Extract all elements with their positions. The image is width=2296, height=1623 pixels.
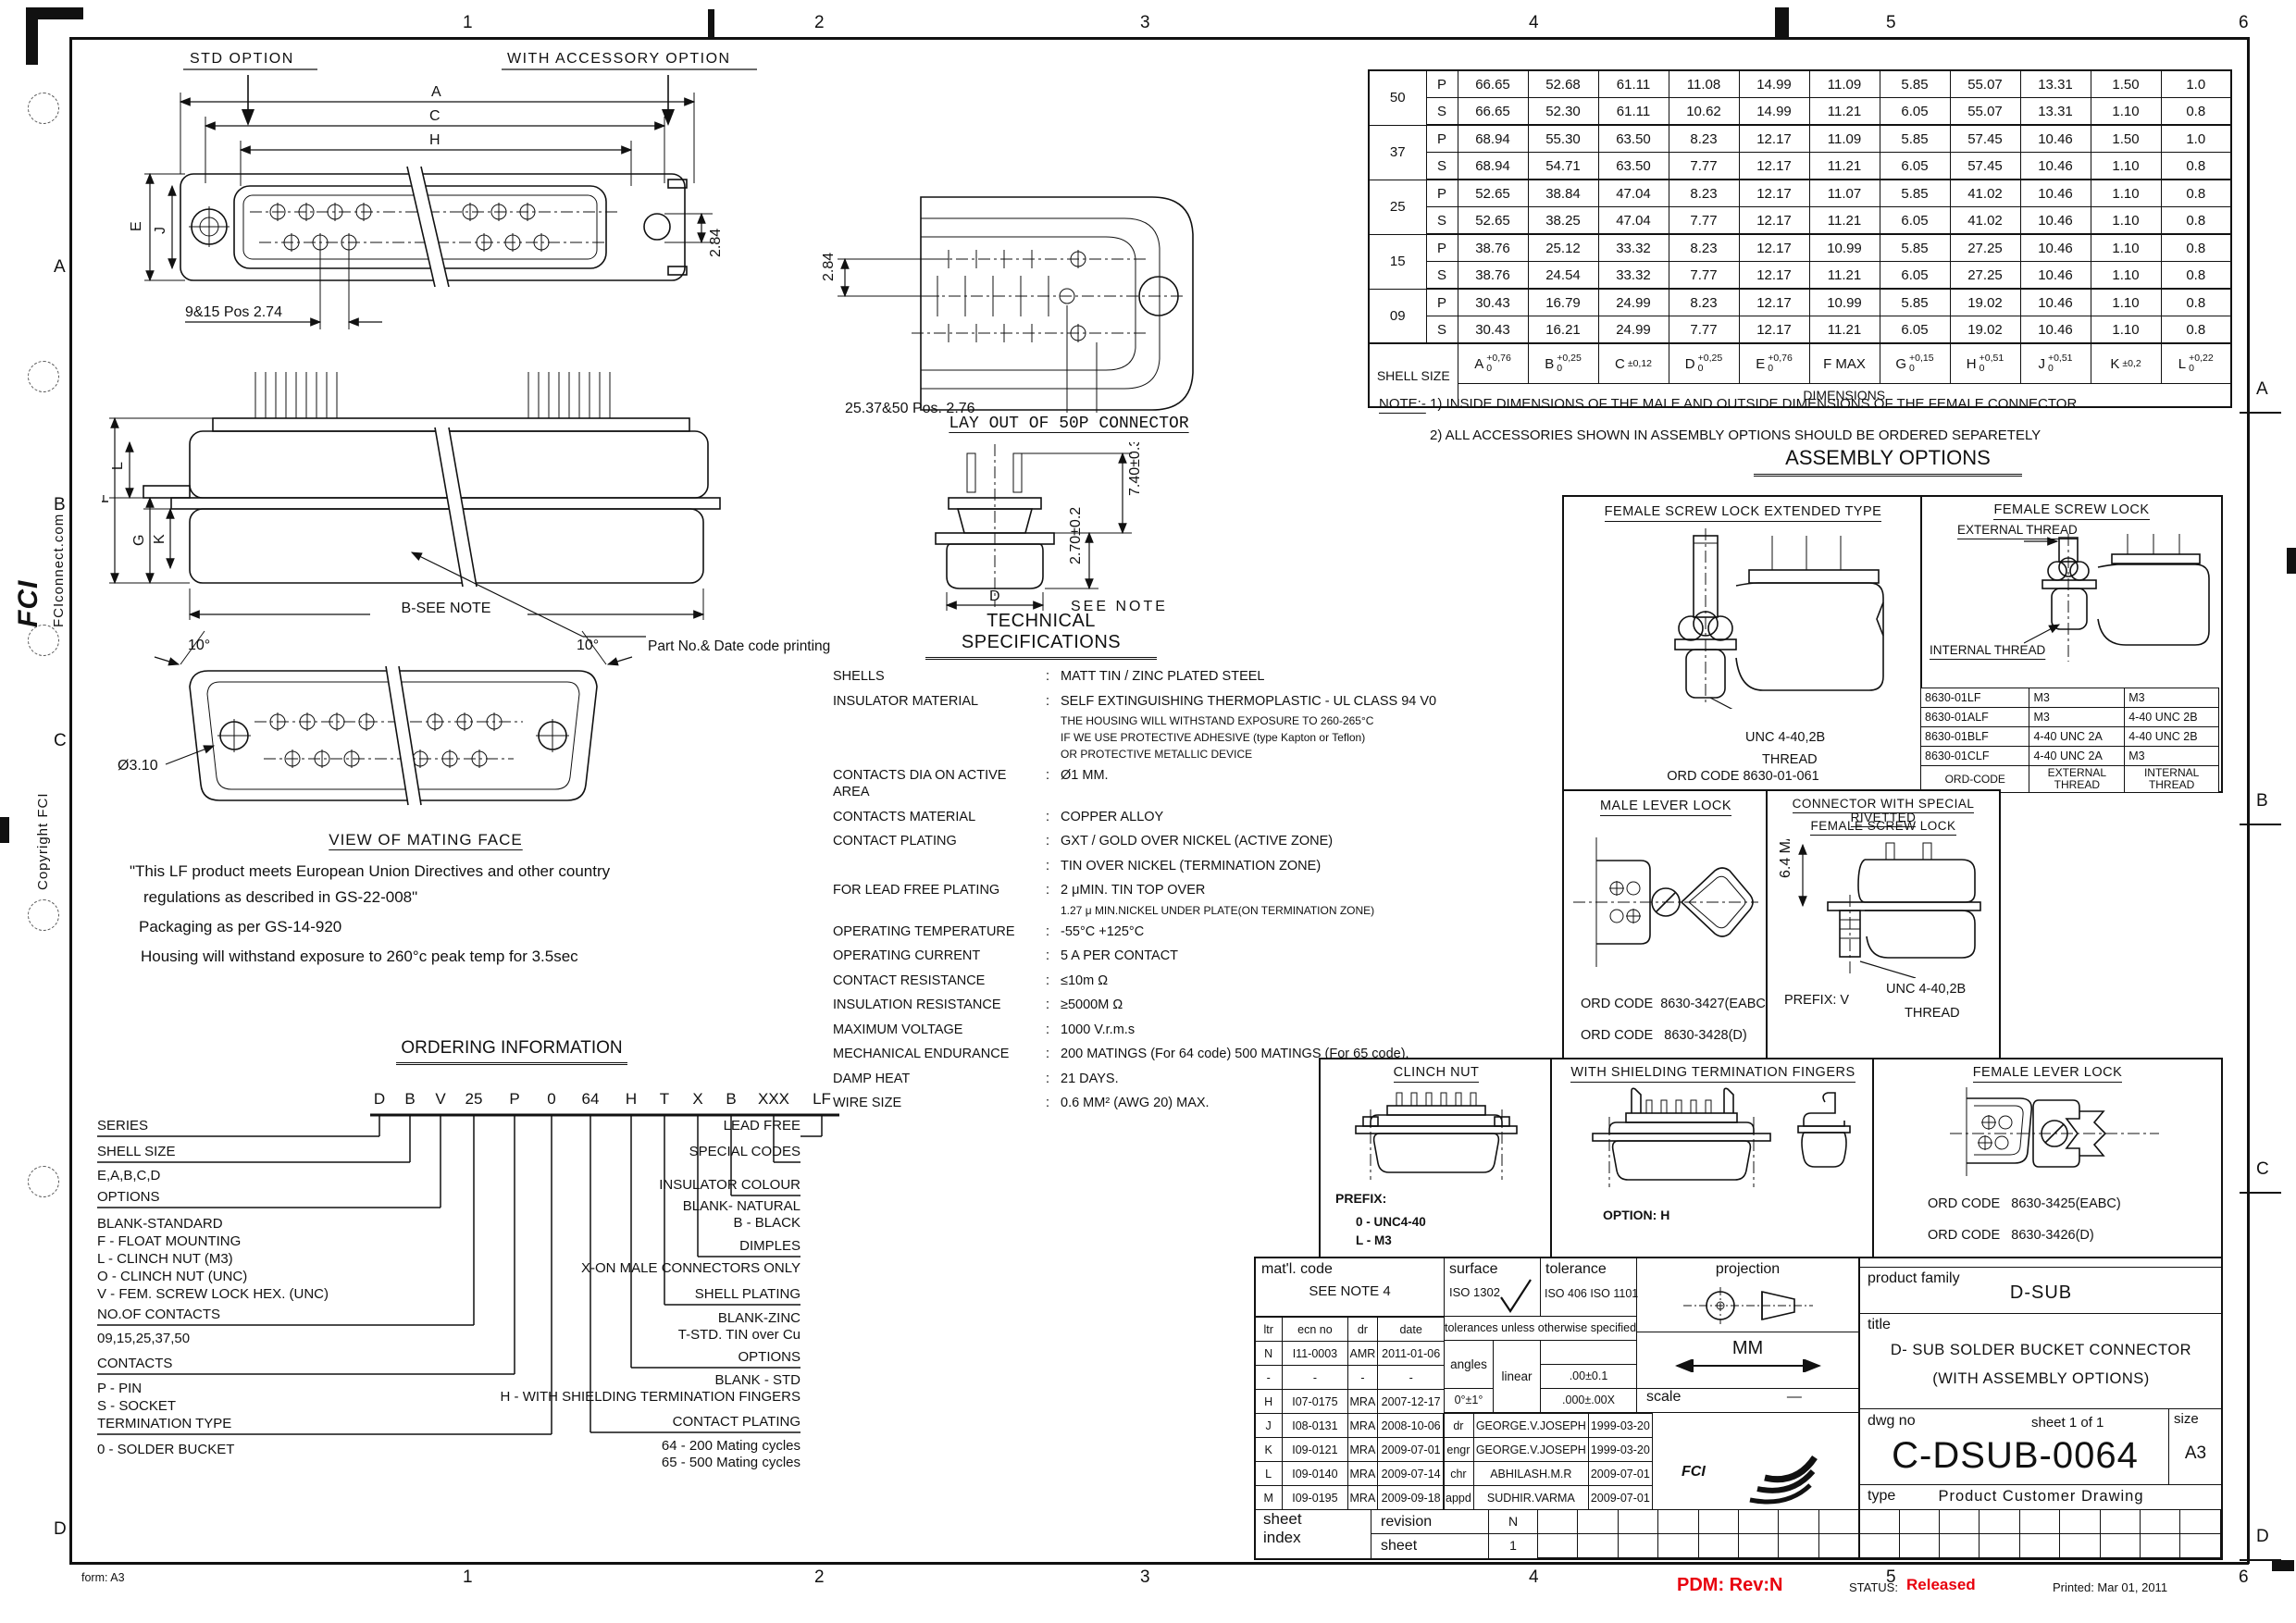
table-cell: 7.77 [1669, 207, 1739, 235]
table-cell: 11.21 [1809, 316, 1880, 344]
col-letter: E [1756, 356, 1765, 372]
ordering-contact-plating-item: 65 - 500 Mating cycles [430, 1455, 800, 1470]
table-cell: 30.43 [1458, 289, 1528, 316]
spec-row: CONTACT RESISTANCE:≤10m Ω [833, 973, 1425, 989]
table-cell: - [1255, 1366, 1283, 1390]
drawing-title-line1: D- SUB SOLDER BUCKET CONNECTOR [1860, 1342, 2222, 1359]
table-cell: 2007-12-17 [1378, 1390, 1445, 1414]
table-row: 8630-01CLF4-40 UNC 2AM3 [1921, 747, 2219, 766]
table-cell: 8630-01CLF [1921, 747, 2029, 766]
ordering-colour-label: INSULATOR COLOUR [430, 1177, 800, 1193]
table-cell: 10.46 [2020, 289, 2091, 316]
spec-row: INSULATION RESISTANCE:≥5000M Ω [833, 997, 1425, 1013]
note-2-text: 2) ALL ACCESSORIES SHOWN IN ASSEMBLY OPT… [1430, 427, 2041, 443]
table-cell: 47.04 [1598, 207, 1669, 235]
units-cell: MM [1637, 1332, 1859, 1389]
table-row: 25P52.6538.8447.048.2312.1711.075.8541.0… [1369, 180, 2231, 207]
fold-mark [0, 817, 9, 843]
shield-sketch [1561, 1085, 1865, 1192]
size-value: A3 [2169, 1443, 2222, 1464]
table-cell: 09 [1369, 289, 1426, 343]
pin-contacts [270, 203, 549, 252]
table-row: ---- [1255, 1366, 1445, 1390]
table-cell: S [1426, 98, 1458, 126]
table-row: 09P30.4316.7924.998.2312.1710.995.8519.0… [1369, 289, 2231, 316]
revision-value-cell: N [1489, 1510, 1538, 1534]
table-cell: INTERNAL THREAD [2125, 766, 2219, 793]
table-cell: 38.25 [1528, 207, 1598, 235]
table-cell: 2008-10-06 [1378, 1414, 1445, 1438]
table-cell: 57.45 [1950, 153, 2020, 180]
table-cell: 10.99 [1809, 289, 1880, 316]
ordering-shell-size-label: SHELL SIZE [97, 1144, 175, 1159]
table-cell: 24.99 [1598, 289, 1669, 316]
table-cell: 25 [1369, 180, 1426, 234]
table-cell: 11.21 [1809, 98, 1880, 126]
zone-number: 1 [463, 13, 473, 33]
table-cell: MRA [1347, 1438, 1378, 1462]
table-cell: 0.8 [2161, 207, 2231, 235]
title-cell: title D- SUB SOLDER BUCKET CONNECTOR (WI… [1860, 1314, 2222, 1409]
dim-c-label: C [429, 108, 441, 124]
table-cell: M3 [2125, 747, 2219, 766]
fci-logo-text: FCI [13, 542, 44, 627]
table-cell: EXTERNAL THREAD [2029, 766, 2125, 793]
table-cell: MRA [1347, 1390, 1378, 1414]
ordering-termination-item: 0 - SOLDER BUCKET [97, 1442, 234, 1457]
spec-colon: : [1035, 767, 1061, 800]
sheet-of-label: sheet 1 of 1 [2031, 1415, 2104, 1431]
table-cell: 12.17 [1739, 207, 1809, 235]
pin-comb [1396, 1093, 1476, 1106]
table-cell: 11.21 [1809, 262, 1880, 290]
tol-lower: 0 [1557, 364, 1562, 374]
table-cell: 10.46 [2020, 234, 2091, 262]
tol-lower: 0 [1980, 364, 1985, 374]
ordering-lead-free-label: LEAD FREE [430, 1118, 800, 1134]
ordering-options-label: OPTIONS [430, 1349, 800, 1365]
fll-ord-2: ORD CODE 8630-3426(D) [1928, 1228, 2094, 1243]
std-option-label: STD OPTION [190, 51, 294, 67]
table-row: ltrecn nodrdate [1255, 1318, 1445, 1342]
angle-tolerance-value: 0°±1° [1445, 1389, 1494, 1413]
spec-label: MECHANICAL ENDURANCE [833, 1046, 1035, 1062]
fsl-extended-title: FEMALE SCREW LOCK EXTENDED TYPE [1605, 504, 1882, 522]
table-cell: 2011-01-06 [1378, 1342, 1445, 1366]
table-row: 15P38.7625.1233.328.2312.1710.995.8527.2… [1369, 234, 2231, 262]
table-cell: 1999-03-20 [1588, 1438, 1652, 1462]
zone-tick [2240, 824, 2281, 825]
spec-value: ≤10m Ω [1061, 973, 1425, 989]
table-cell: 10.46 [2020, 316, 2091, 344]
ordering-colour-item: BLANK- NATURAL [430, 1198, 800, 1214]
table-cell: 0.8 [2161, 316, 2231, 344]
table-cell: 1.10 [2091, 207, 2161, 235]
table-cell: - [1283, 1366, 1347, 1390]
dim-270-label: 2.70±0.2 [1068, 507, 1084, 564]
table-cell: 52.30 [1528, 98, 1598, 126]
tol-lower: 0 [1698, 364, 1704, 374]
table-cell: SUDHIR.VARMA [1473, 1486, 1588, 1510]
table-cell: 55.07 [1950, 70, 2020, 98]
table-row: S30.4316.2124.997.7712.1711.216.0519.021… [1369, 316, 2231, 344]
ordering-contact-item: S - SOCKET [97, 1398, 176, 1414]
table-cell: 7.77 [1669, 316, 1739, 344]
front-view-drawing: STD OPTION WITH ACCESSORY OPTION A C H [102, 44, 824, 364]
surface-finish-icon [1497, 1277, 1534, 1314]
table-cell: 2009-07-01 [1588, 1462, 1652, 1486]
spec-subline: OR PROTECTIVE METALLIC DEVICE [1061, 747, 1425, 762]
assembly-riveted-cell: CONNECTOR WITH SPECIAL RIVETTED FEMALE S… [1766, 789, 2001, 1061]
table-cell: 1.0 [2161, 125, 2231, 153]
linear-cell: linear [1494, 1341, 1541, 1413]
table-cell: 12.17 [1739, 125, 1809, 153]
table-row: S38.7624.5433.327.7712.1711.216.0527.251… [1369, 262, 2231, 290]
table-cell: GEORGE.V.JOSEPH [1473, 1414, 1588, 1438]
empty-grid-cell [1658, 1510, 1698, 1534]
scale-label: scale [1637, 1389, 1681, 1405]
fold-mark [708, 9, 714, 37]
table-cell: 12.17 [1739, 234, 1809, 262]
table-cell: 52.65 [1458, 180, 1528, 207]
table-cell: 1.0 [2161, 70, 2231, 98]
table-cell: 1.10 [2091, 153, 2161, 180]
table-cell: 1.10 [2091, 316, 2161, 344]
frame-top [69, 37, 2249, 40]
table-cell: H [1255, 1390, 1283, 1414]
product-family-cell: product family D-SUB [1860, 1267, 2222, 1314]
table-cell: 8630-01BLF [1921, 727, 2029, 747]
sheet-index-cell: sheet index [1256, 1510, 1371, 1558]
linear-tolerance-value: .00±0.1 [1541, 1365, 1637, 1389]
surface-label: surface [1445, 1258, 1540, 1278]
assembly-options-title: ASSEMBLY OPTIONS [1754, 446, 2022, 477]
frame-bottom [69, 1562, 2249, 1565]
table-cell: 4-40 UNC 2A [2029, 727, 2125, 747]
zone-number: 6 [2239, 1567, 2249, 1588]
table-cell: 8630-01LF [1921, 688, 2029, 708]
solder-pins [255, 372, 610, 418]
table-cell: AMR [1347, 1342, 1378, 1366]
ordering-contact-item: P - PIN [97, 1381, 142, 1396]
table-cell: 6.05 [1880, 262, 1950, 290]
table-cell: 2009-07-01 [1378, 1438, 1445, 1462]
table-cell: 11.09 [1809, 125, 1880, 153]
spec-row: CONTACTS MATERIAL:COPPER ALLOY [833, 809, 1425, 825]
lf-note-line4: Housing will withstand exposure to 260°c… [141, 948, 578, 966]
ordering-contact-plating-item: 64 - 200 Mating cycles [430, 1438, 800, 1454]
size-label: size [2169, 1409, 2222, 1427]
spec-subline: IF WE USE PROTECTIVE ADHESIVE (type Kapt… [1061, 730, 1425, 745]
empty-grid-cell [1779, 1510, 1818, 1534]
ordering-option-item: L - CLINCH NUT (M3) [97, 1251, 233, 1267]
spec-subline: 1.27 μ MIN.NICKEL UNDER PLATE(ON TERMINA… [1061, 903, 1425, 918]
tol-lower: 0 [1768, 364, 1773, 374]
mll-sketch [1569, 828, 1763, 976]
zone-number: 1 [463, 1567, 473, 1588]
punch-hole [28, 625, 59, 656]
ord-code-label: ORD CODE [1928, 1228, 2000, 1243]
table-cell: 14.99 [1739, 70, 1809, 98]
fci-logo-sidebar: FCI [13, 542, 56, 627]
tech-specs-list: SHELLS:MATT TIN / ZINC PLATED STEELINSUL… [833, 668, 1425, 1120]
empty-grid-cell [1658, 1534, 1698, 1558]
table-row: 8630-01LFM3M3 [1921, 688, 2219, 708]
table-cell: - [1378, 1366, 1445, 1390]
spec-label: MAXIMUM VOLTAGE [833, 1022, 1035, 1038]
product-family-label: product family [1868, 1270, 1960, 1287]
spec-value: MATT TIN / ZINC PLATED STEEL [1061, 668, 1425, 685]
title-block-right: product family D-SUB title D- SUB SOLDER… [1859, 1258, 2221, 1558]
table-cell: 11.09 [1809, 70, 1880, 98]
table-cell: 0.8 [2161, 153, 2231, 180]
table-cell: 24.54 [1528, 262, 1598, 290]
table-cell: 47.04 [1598, 180, 1669, 207]
dim-284-label: 2.84 [821, 253, 837, 281]
ord-code-value: 8630-3427(EABC) [1660, 997, 1770, 1011]
table-cell: 37 [1369, 125, 1426, 180]
table-cell: 5.85 [1880, 125, 1950, 153]
revision-table: ltrecn nodrdateNI11-0003AMR2011-01-06---… [1254, 1317, 1445, 1510]
zone-number: 2 [814, 13, 825, 33]
table-cell: 41.02 [1950, 180, 2020, 207]
clinch-prefix-1: 0 - UNC4-40 [1356, 1215, 1426, 1229]
table-cell: 24.99 [1598, 316, 1669, 344]
empty-grid-cell [1619, 1510, 1658, 1534]
dimension-table: 50P66.6552.6861.1111.0814.9911.095.8555.… [1368, 69, 2232, 408]
table-cell: 61.11 [1598, 70, 1669, 98]
title-block: mat'l. code SEE NOTE 4 surface ISO 1302 … [1254, 1257, 2223, 1560]
tolerance-label: tolerance [1541, 1258, 1636, 1278]
fci-logo-text: FCI [1682, 1464, 1706, 1480]
scale-cell: scale — [1637, 1389, 1859, 1413]
spec-label [833, 858, 1035, 874]
table-cell: 1.50 [2091, 125, 2161, 153]
table-cell: 66.65 [1458, 98, 1528, 126]
table-cell: appd [1444, 1486, 1474, 1510]
table-cell: S [1426, 207, 1458, 235]
table-cell: 2009-09-18 [1378, 1486, 1445, 1510]
drawing-number-cell: dwg no sheet 1 of 1 C-DSUB-0064 size A3 [1860, 1409, 2222, 1485]
empty-grid-cell [1739, 1510, 1779, 1534]
table-cell: 8.23 [1669, 125, 1739, 153]
zone-letter: B [2256, 791, 2268, 811]
projection-symbol-icon [1679, 1284, 1818, 1327]
zone-letter: A [54, 257, 66, 278]
spec-label: FOR LEAD FREE PLATING [833, 882, 1035, 898]
table-cell: 50 [1369, 70, 1426, 125]
zone-tick [2240, 1559, 2281, 1561]
frame-right [2247, 37, 2250, 1564]
table-cell: 27.25 [1950, 262, 2020, 290]
size-cell: size A3 [2168, 1409, 2222, 1485]
table-cell: 15 [1369, 234, 1426, 289]
spec-row: MAXIMUM VOLTAGE:1000 V.r.m.s [833, 1022, 1425, 1038]
spec-label: CONTACTS MATERIAL [833, 809, 1035, 825]
table-cell: 10.46 [2020, 125, 2091, 153]
table-cell: 68.94 [1458, 153, 1528, 180]
table-cell: P [1426, 289, 1458, 316]
table-cell: ABHILASH.M.R [1473, 1462, 1588, 1486]
empty-grid-cell [1779, 1534, 1818, 1558]
ord-code-value: 8630-3428(D) [1664, 1028, 1746, 1043]
tol-upper: ±0,2 [2122, 359, 2141, 369]
table-cell: I09-0140 [1283, 1462, 1347, 1486]
table-cell: 5.85 [1880, 180, 1950, 207]
table-cell: 38.76 [1458, 234, 1528, 262]
dwg-no-value: C-DSUB-0064 [1869, 1435, 2161, 1477]
ord-code-label: ORD CODE [1581, 997, 1653, 1011]
sheet-word: sheet [1263, 1510, 1371, 1529]
table-cell: 38.84 [1528, 180, 1598, 207]
table-cell: 12.17 [1739, 153, 1809, 180]
scale-value: — [1685, 1389, 1802, 1405]
table-cell: 7.77 [1669, 153, 1739, 180]
copyright-text: Copyright FCI [35, 770, 51, 890]
col-letter: G [1895, 356, 1906, 372]
punch-hole [28, 899, 59, 931]
table-cell: 33.32 [1598, 234, 1669, 262]
fsl-thread-table: 8630-01LFM3M38630-01ALFM34-40 UNC 2B8630… [1920, 688, 2219, 793]
table-cell: 41.02 [1950, 207, 2020, 235]
table-cell: I09-0195 [1283, 1486, 1347, 1510]
table-cell: P [1426, 180, 1458, 207]
table-row: KI09-0121MRA2009-07-01 [1255, 1438, 1445, 1462]
fold-mark [2272, 1560, 2294, 1571]
spec-colon: : [1035, 858, 1061, 874]
spec-value: TIN OVER NICKEL (TERMINATION ZONE) [1061, 858, 1425, 874]
table-cell: 5.85 [1880, 70, 1950, 98]
table-cell: 2009-07-01 [1588, 1486, 1652, 1510]
fold-mark [2287, 548, 2296, 574]
riveted-sketch: 6.4 MAX [1777, 839, 1990, 978]
spec-colon: : [1035, 923, 1061, 940]
projection-label: projection [1637, 1258, 1858, 1278]
ord-code-value: 8630-3426(D) [2011, 1228, 2093, 1243]
table-cell: 13.31 [2020, 70, 2091, 98]
mating-face-drawing: 10° 10° Ø3.10 [116, 629, 671, 825]
layout-50p-caption: LAY OUT OF 50P CONNECTOR [884, 415, 1254, 433]
table-cell: 55.07 [1950, 98, 2020, 126]
table-cell: 38.76 [1458, 262, 1528, 290]
spec-colon: : [1035, 668, 1061, 685]
table-cell: J [1255, 1414, 1283, 1438]
signoff-table: drGEORGE.V.JOSEPH1999-03-20engrGEORGE.V.… [1443, 1413, 1653, 1510]
table-cell: I08-0131 [1283, 1414, 1347, 1438]
spec-colon: : [1035, 1095, 1061, 1111]
col-letter: F MAX [1823, 356, 1866, 372]
table-cell: 33.32 [1598, 262, 1669, 290]
zone-number: 6 [2239, 13, 2249, 33]
spec-label: CONTACT RESISTANCE [833, 973, 1035, 989]
table-cell: chr [1444, 1462, 1474, 1486]
shield-title: WITH SHIELDING TERMINATION FINGERS [1570, 1065, 1855, 1083]
table-cell: 30.43 [1458, 316, 1528, 344]
table-cell: 1.10 [2091, 98, 2161, 126]
angle-label-left: 10° [188, 638, 210, 653]
units-value: MM [1637, 1332, 1858, 1359]
table-cell: dr [1347, 1318, 1378, 1342]
table-cell: 2009-07-14 [1378, 1462, 1445, 1486]
mll-ord-1: ORD CODE 8630-3427(EABC) [1581, 997, 1770, 1011]
spec-colon: : [1035, 693, 1061, 710]
dim-l-label: L [110, 462, 126, 470]
spec-row: OPERATING CURRENT:5 A PER CONTACT [833, 948, 1425, 964]
dim-d-label: D [989, 588, 1000, 604]
ordering-option-item: BLANK-STANDARD [97, 1216, 223, 1232]
spec-value: GXT / GOLD OVER NICKEL (ACTIVE ZONE) [1061, 833, 1425, 849]
fsl-extended-thread: UNC 4-40,2B [1745, 730, 1825, 745]
status-value: Released [1906, 1576, 1976, 1594]
col-letter: D [1685, 356, 1695, 372]
table-cell: 1.10 [2091, 289, 2161, 316]
tol-lower: 0 [1909, 364, 1915, 374]
riveted-thread2: THREAD [1905, 1006, 1960, 1021]
table-cell: 11.21 [1809, 207, 1880, 235]
frame-left [69, 37, 72, 1564]
empty-grid-cell [1619, 1534, 1658, 1558]
ordering-options-label: OPTIONS [97, 1189, 160, 1205]
table-row: S66.6552.3061.1110.6214.9911.216.0555.07… [1369, 98, 2231, 126]
zone-number: 3 [1140, 1567, 1150, 1588]
table-cell: ecn no [1283, 1318, 1347, 1342]
punch-hole [28, 1166, 59, 1197]
dim-k-label: K [152, 534, 168, 544]
table-cell: 8.23 [1669, 289, 1739, 316]
table-cell: 63.50 [1598, 153, 1669, 180]
table-row: 50P66.6552.6861.1111.0814.9911.095.8555.… [1369, 70, 2231, 98]
empty-grid-cell [1699, 1510, 1739, 1534]
table-cell: 1.10 [2091, 234, 2161, 262]
table-cell: 11.08 [1669, 70, 1739, 98]
table-cell: 54.71 [1528, 153, 1598, 180]
spec-row: OPERATING TEMPERATURE:-55°C +125°C [833, 923, 1425, 940]
tolerance-note-cell: tolerances unless otherwise specified [1445, 1317, 1637, 1341]
assembly-fll-cell: FEMALE LEVER LOCK ORD CODE 8630-3425(EAB… [1872, 1058, 2223, 1260]
table-cell: 10.46 [2020, 180, 2091, 207]
spec-label: WIRE SIZE [833, 1095, 1035, 1111]
table-cell: 63.50 [1598, 125, 1669, 153]
spec-colon: : [1035, 997, 1061, 1013]
table-cell: 8630-01ALF [1921, 708, 2029, 727]
table-cell: MRA [1347, 1462, 1378, 1486]
spec-row: CONTACT PLATING:GXT / GOLD OVER NICKEL (… [833, 833, 1425, 849]
table-cell: 1.10 [2091, 180, 2161, 207]
table-cell: K [1255, 1438, 1283, 1462]
table-cell: 27.25 [1950, 234, 2020, 262]
clinch-title: CLINCH NUT [1394, 1065, 1480, 1083]
zone-number: 2 [814, 1567, 825, 1588]
table-row: 8630-01BLF4-40 UNC 2A4-40 UNC 2B [1921, 727, 2219, 747]
shield-option: OPTION: H [1603, 1208, 1669, 1222]
table-cell: 4-40 UNC 2A [2029, 747, 2125, 766]
corner-mark [26, 7, 38, 65]
table-cell: 12.17 [1739, 262, 1809, 290]
spec-value: ≥5000M Ω [1061, 997, 1425, 1013]
dim-b-label: B-SEE NOTE [402, 601, 491, 616]
tol-lower: 0 [1486, 364, 1492, 374]
table-cell: 52.65 [1458, 207, 1528, 235]
table-cell: 0.8 [2161, 262, 2231, 290]
tolerance-value: ISO 406 ISO 1101 [1541, 1278, 1636, 1300]
ordering-option-item: BLANK - STD [430, 1372, 800, 1388]
ordering-series-label: SERIES [97, 1118, 148, 1134]
table-cell: 52.68 [1528, 70, 1598, 98]
ordering-dimples-item: X-ON MALE CONNECTORS ONLY [430, 1260, 800, 1276]
assembly-mll-cell: MALE LEVER LOCK ORD CODE 8630-3427(EABC)… [1562, 789, 1769, 1061]
table-cell: 55.30 [1528, 125, 1598, 153]
table-cell: 57.45 [1950, 125, 2020, 153]
